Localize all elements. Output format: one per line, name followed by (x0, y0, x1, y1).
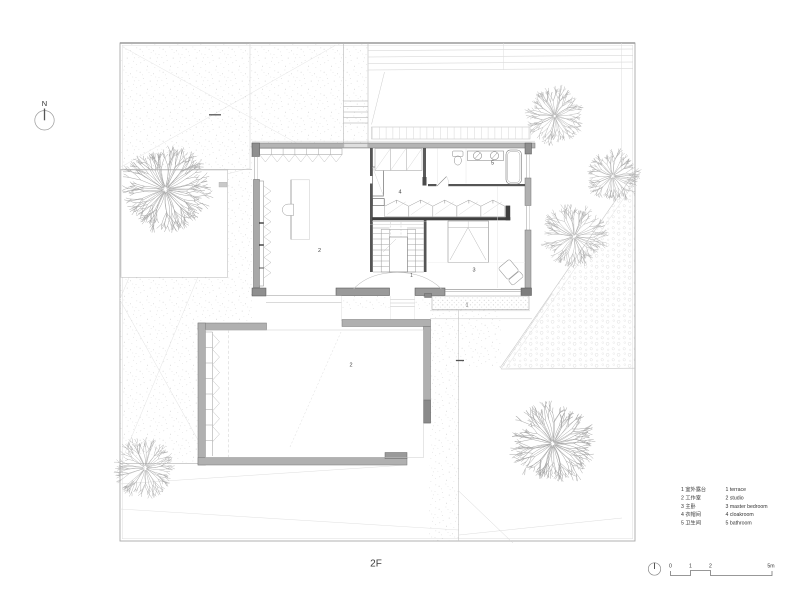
svg-text:1: 1 (410, 273, 413, 279)
svg-text:0: 0 (669, 564, 672, 570)
svg-text:4 衣帽间: 4 衣帽间 (681, 510, 701, 518)
svg-text:1: 1 (466, 303, 469, 309)
svg-text:2 工作室: 2 工作室 (681, 494, 701, 502)
svg-text:2: 2 (709, 564, 712, 570)
svg-text:N: N (42, 99, 47, 108)
svg-text:1 室外露台: 1 室外露台 (681, 485, 706, 493)
svg-text:2: 2 (349, 363, 352, 369)
svg-text:5 卫生间: 5 卫生间 (681, 518, 701, 526)
svg-text:3 主卧: 3 主卧 (681, 502, 696, 510)
svg-text:1: 1 (689, 564, 692, 570)
svg-text:5 bathroom: 5 bathroom (726, 520, 752, 526)
svg-text:5: 5 (491, 161, 494, 167)
svg-text:4 cloakroom: 4 cloakroom (726, 512, 754, 518)
svg-text:2F: 2F (370, 559, 382, 570)
svg-text:2: 2 (318, 248, 321, 254)
svg-text:2 studio: 2 studio (726, 496, 744, 502)
svg-text:3 master bedroom: 3 master bedroom (726, 504, 768, 510)
svg-text:5m: 5m (767, 564, 774, 570)
svg-text:4: 4 (398, 190, 401, 196)
svg-text:3: 3 (472, 268, 475, 274)
svg-text:1 terrace: 1 terrace (726, 487, 747, 493)
